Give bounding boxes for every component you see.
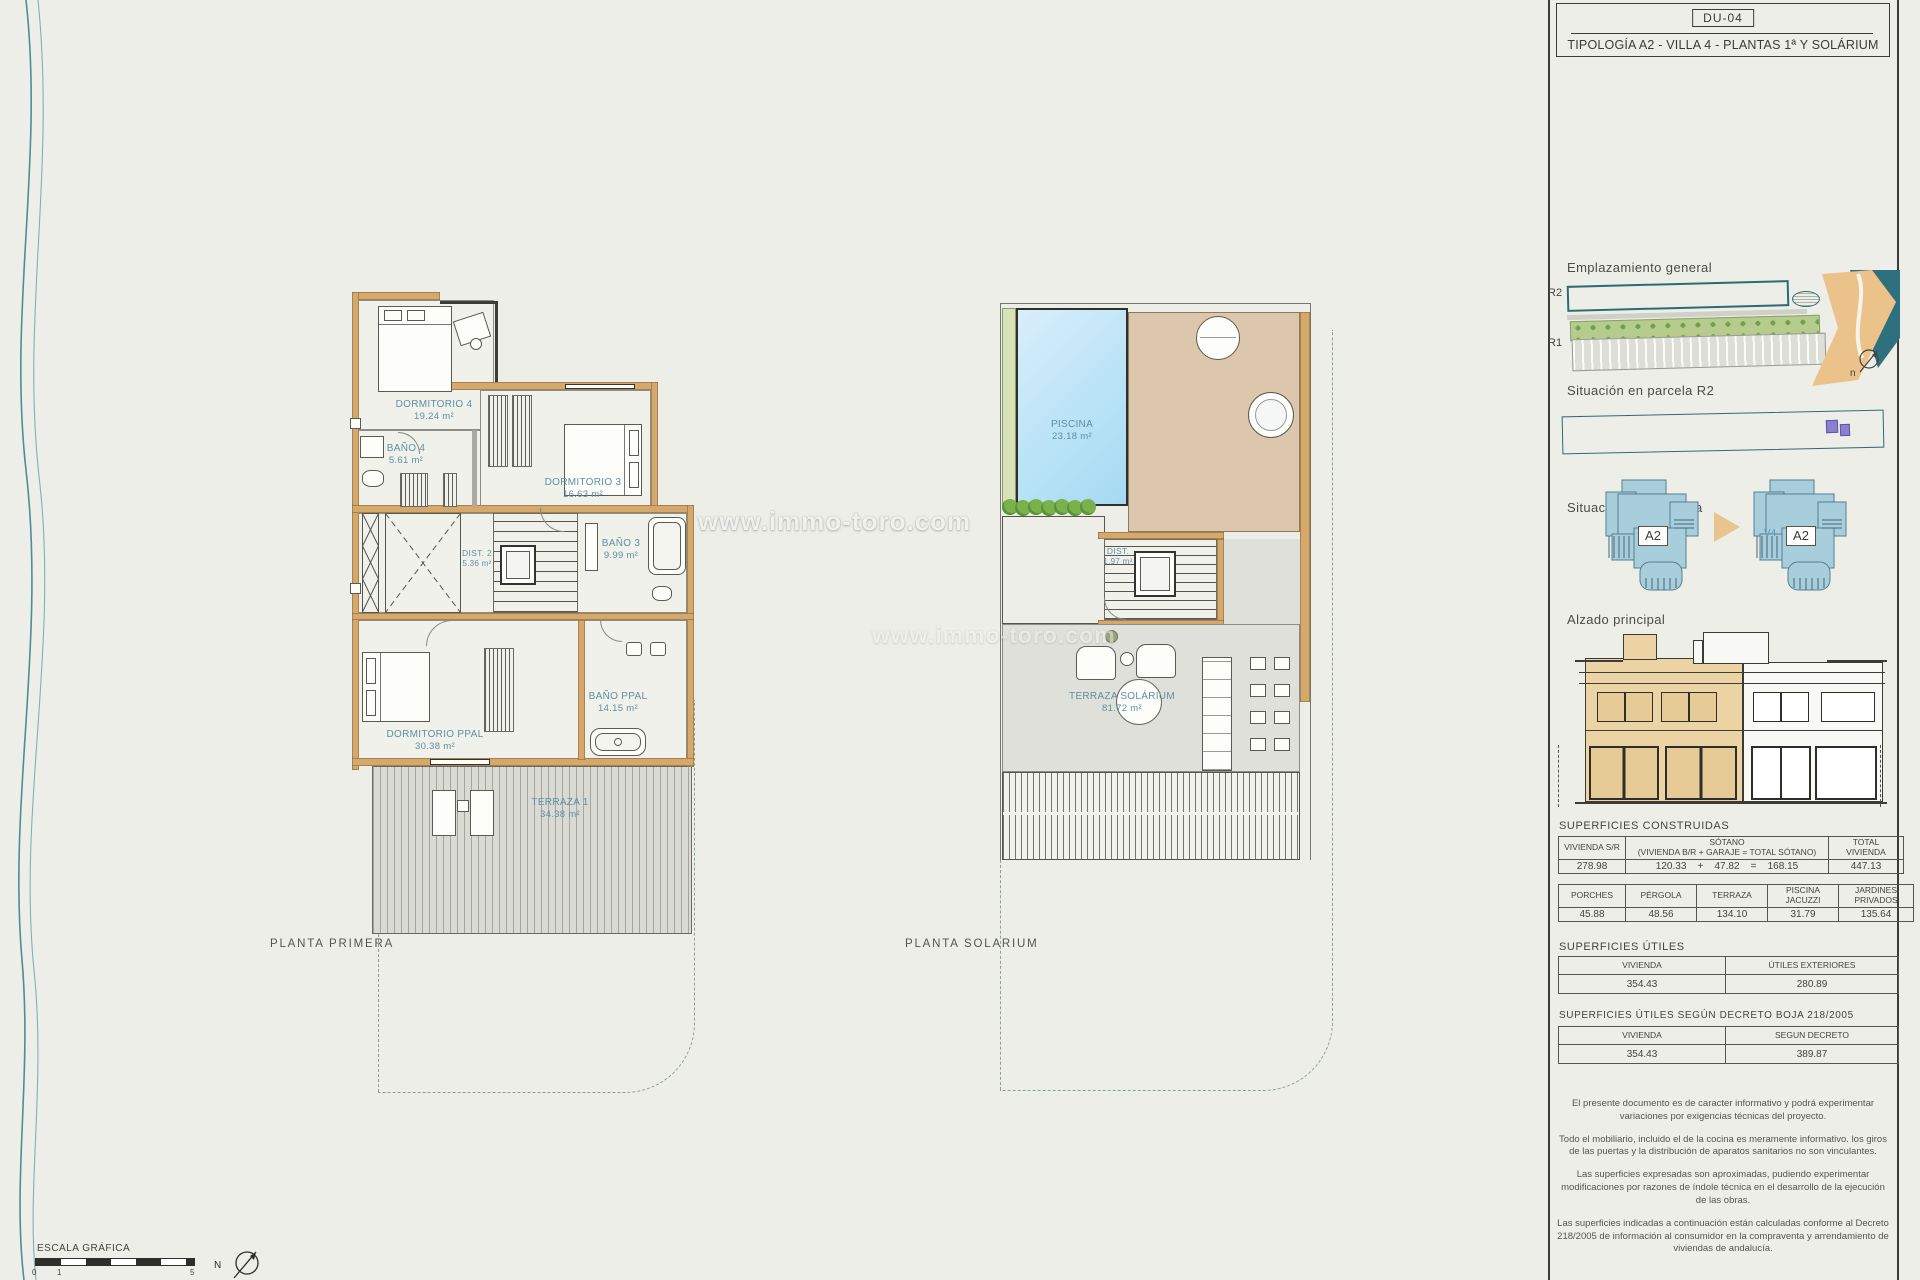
- elevation-railing-line: [1827, 660, 1887, 662]
- elevation-boundary-line: [1558, 745, 1560, 807]
- elevation-window: [1815, 746, 1877, 800]
- stool-symbol: [1274, 711, 1290, 724]
- table-cell: 354.43: [1559, 975, 1726, 994]
- col-header: SÓTANO (VIVIENDA B/R + GARAJE = TOTAL SÓ…: [1626, 837, 1829, 860]
- operator: +: [1698, 861, 1704, 872]
- villa-type-badge: A2: [1786, 526, 1816, 546]
- arrow-right-icon: [1714, 512, 1740, 542]
- watermark: www.immo-toro.com: [872, 622, 1116, 649]
- scale-tick: 5: [190, 1268, 194, 1277]
- room-label: DORMITORIO 3 16.63 m²: [545, 476, 622, 501]
- north-label: N: [214, 1260, 221, 1271]
- table-cell: 280.89: [1726, 975, 1899, 994]
- plot-boundary-line: [378, 934, 380, 1092]
- header-line: VIVIENDA: [1831, 848, 1901, 858]
- table-cell: 31.79: [1768, 907, 1839, 921]
- sheet-border-line: [1897, 0, 1899, 1280]
- table-cell: 354.43: [1559, 1045, 1726, 1064]
- wall: [1300, 312, 1310, 702]
- note-paragraph: El presente documento es de caracter inf…: [1556, 1098, 1890, 1124]
- room-name: TERRAZA 1: [531, 796, 588, 809]
- note-paragraph: Las superficies indicadas a continuación…: [1556, 1218, 1890, 1256]
- plan-title-primera: PLANTA PRIMERA: [270, 938, 394, 950]
- table-heading-construidas: SUPERFICIES CONSTRUIDAS: [1559, 820, 1729, 832]
- table-cell: 48.56: [1626, 907, 1697, 921]
- col-header: TERRAZA: [1697, 885, 1768, 908]
- table-cell: 134.10: [1697, 907, 1768, 921]
- value: 47.82: [1714, 861, 1739, 872]
- col-header: PISCINAJACUZZI: [1768, 885, 1839, 908]
- table-cell: 135.64: [1839, 907, 1914, 921]
- sofa-symbol: [1076, 646, 1116, 680]
- wall: [651, 382, 658, 508]
- bidet-symbol: [650, 642, 666, 656]
- bathtub-inner: [653, 522, 681, 570]
- scale-label: ESCALA GRÁFICA: [37, 1243, 130, 1254]
- col-header: SEGUN DECRETO: [1726, 1027, 1899, 1045]
- elevation-roof-box: [1693, 640, 1703, 664]
- col-header: PÉRGOLA: [1626, 885, 1697, 908]
- room-label: DORMITORIO 4 19.24 m²: [396, 398, 473, 423]
- table-cell: 278.98: [1559, 859, 1626, 873]
- wall: [472, 430, 477, 506]
- pillow-symbol: [629, 462, 639, 488]
- table-cell: 45.88: [1559, 907, 1626, 921]
- elevation-window: [1753, 692, 1809, 722]
- highlighted-villa-unit: [1826, 420, 1838, 433]
- wall: [1217, 539, 1224, 627]
- counter-symbol: [1202, 657, 1232, 771]
- room-area: 9.99 m²: [602, 550, 640, 562]
- room-area: 34.38 m²: [531, 809, 588, 821]
- room-label: PISCINA 23.18 m²: [1051, 418, 1093, 443]
- toilet-symbol: [362, 470, 384, 487]
- room-name: BAÑO 3: [602, 537, 640, 550]
- planter-strip: [1002, 308, 1016, 506]
- window-symbol: [565, 384, 635, 389]
- bed-line: [380, 653, 381, 721]
- sofa-symbol: [1136, 644, 1176, 678]
- stool-symbol: [1250, 738, 1266, 751]
- pillow-symbol: [384, 310, 402, 321]
- shoreline-waves-icon: [0, 0, 70, 1280]
- wardrobe-symbol: [484, 648, 514, 732]
- room-name: BAÑO 4: [387, 442, 425, 455]
- table-decreto: VIVIENDA SEGUN DECRETO 354.43 389.87: [1558, 1026, 1899, 1064]
- pillow-symbol: [629, 430, 639, 456]
- double-height-void-symbol: [362, 513, 462, 613]
- wall: [578, 620, 585, 760]
- title-block: DU-04 TIPOLOGÍA A2 - VILLA 4 - PLANTAS 1…: [1556, 3, 1890, 57]
- table-heading-decreto: SUPERFICIES ÚTILES SEGÚN DECRETO BOJA 21…: [1559, 1010, 1854, 1021]
- wall: [352, 613, 694, 620]
- washbasin-symbol: [585, 523, 598, 571]
- window-symbol: [350, 583, 361, 594]
- villa-number-tag: V4: [1764, 528, 1776, 539]
- col-header: VIVIENDA S/R: [1559, 837, 1626, 860]
- pillow-symbol: [407, 310, 425, 321]
- room-label: BAÑO PPAL 14.15 m²: [589, 690, 648, 715]
- room-label: DIST. 1.97 m²: [1103, 546, 1132, 567]
- drawing-code: DU-04: [1692, 9, 1754, 27]
- stool-symbol: [1274, 684, 1290, 697]
- elevation-floor-line: [1585, 730, 1883, 731]
- room-name: BAÑO PPAL: [589, 690, 648, 703]
- window-symbol: [350, 418, 361, 429]
- louver-roof-symbol: [1002, 772, 1300, 860]
- room-area: 1.97 m²: [1103, 557, 1132, 567]
- room-label: TERRAZA 1 34.38 m²: [531, 796, 588, 821]
- jacuzzi-inner: [1255, 399, 1287, 431]
- drain-symbol: [614, 738, 622, 746]
- scale-tick: 0: [32, 1268, 36, 1277]
- bed-line: [624, 425, 625, 495]
- scale-bar: [35, 1258, 195, 1266]
- side-table-symbol: [1120, 652, 1134, 666]
- scale-tick: 1: [57, 1268, 61, 1277]
- room-label: BAÑO 3 9.99 m²: [602, 537, 640, 562]
- window-symbol: [430, 759, 490, 765]
- section-heading-parcela: Situación en parcela R2: [1567, 383, 1714, 398]
- room-name: DIST.: [1103, 546, 1132, 557]
- note-paragraph: Todo el mobiliario, incluido el de la co…: [1556, 1134, 1890, 1160]
- terrace-deck: [372, 766, 692, 934]
- map-label-r2: R2: [1548, 287, 1562, 299]
- beach-map-symbol: [1798, 268, 1900, 386]
- stool-symbol: [1250, 684, 1266, 697]
- pillow-symbol: [366, 658, 376, 684]
- hedge-symbol: [1080, 499, 1096, 515]
- room-label: TERRAZA SOLÁRIUM 81.72 m²: [1069, 690, 1175, 715]
- toilet-symbol: [626, 642, 642, 656]
- room-area: 16.63 m²: [545, 489, 622, 501]
- map-label-r1: R1: [1548, 337, 1562, 349]
- elevation-ground-line: [1575, 802, 1887, 804]
- elevation-window: [1665, 746, 1737, 800]
- col-header: ÚTILES EXTERIORES: [1726, 957, 1899, 975]
- daybed-symbol: [1196, 316, 1240, 360]
- section-heading-emplazamiento: Emplazamiento general: [1567, 260, 1712, 275]
- sun-lounger-symbol: [470, 790, 494, 836]
- daybed-line: [1200, 337, 1236, 338]
- elevation-window: [1597, 692, 1653, 722]
- wall: [352, 758, 694, 766]
- plan-outline: [1000, 303, 1001, 860]
- wardrobe-symbol: [512, 395, 532, 467]
- stool-symbol: [1250, 711, 1266, 724]
- wardrobe-symbol: [488, 395, 508, 467]
- swimming-pool: [1016, 308, 1128, 506]
- elevation-window: [1589, 746, 1659, 800]
- room-name: DORMITORIO 3: [545, 476, 622, 489]
- col-header: VIVIENDA: [1559, 957, 1726, 975]
- wall: [352, 292, 440, 300]
- table-cell: 120.33 + 47.82 = 168.15: [1626, 859, 1829, 873]
- site-strip-r2: [1567, 280, 1790, 312]
- room-area: 81.72 m²: [1069, 703, 1175, 715]
- elevation-roof-box: [1703, 632, 1769, 664]
- stool-symbol: [1274, 738, 1290, 751]
- elevation-drawing: [1575, 630, 1890, 810]
- elevation-window: [1821, 692, 1875, 722]
- glass-wall: [495, 301, 498, 385]
- elevation-parapet-line: [1579, 683, 1885, 684]
- north-arrow-icon: [1852, 346, 1882, 380]
- room-label: DIST. 2 5.36 m²: [462, 548, 492, 569]
- room-area: 5.61 m²: [387, 455, 425, 467]
- sheet-divider-line: [1548, 0, 1550, 1280]
- glass-wall: [440, 301, 498, 304]
- louver-divider: [1003, 812, 1299, 815]
- col-header: JARDINESPRIVADOS: [1839, 885, 1914, 908]
- room-area: 5.36 m²: [462, 559, 492, 569]
- villa-type-badge: A2: [1638, 526, 1668, 546]
- section-heading-alzado: Alzado principal: [1567, 612, 1665, 627]
- solarium-terrace-floor: [1224, 539, 1300, 624]
- pergola-symbol: [1002, 516, 1105, 624]
- watermark: www.immo-toro.com: [698, 506, 971, 537]
- operator: =: [1751, 861, 1757, 872]
- closet-symbol: [443, 473, 457, 507]
- table-construidas-1: VIVIENDA S/R SÓTANO (VIVIENDA B/R + GARA…: [1558, 836, 1904, 874]
- wall: [352, 292, 359, 770]
- north-arrow-icon: [226, 1248, 262, 1280]
- wall: [1098, 532, 1224, 539]
- room-name: DORMITORIO PPAL: [387, 728, 484, 741]
- room-label: BAÑO 4 5.61 m²: [387, 442, 425, 467]
- site-units-band: [1572, 333, 1827, 372]
- elevation-window: [1751, 746, 1811, 800]
- room-area: 19.24 m²: [396, 411, 473, 423]
- col-header: TOTAL VIVIENDA: [1829, 837, 1904, 860]
- pillow-symbol: [366, 690, 376, 716]
- room-label: DORMITORIO PPAL 30.38 m²: [387, 728, 484, 753]
- room-area: 30.38 m²: [387, 741, 484, 753]
- toilet-symbol: [652, 586, 672, 601]
- table-utiles: VIVIENDA ÚTILES EXTERIORES 354.43 280.89: [1558, 956, 1899, 994]
- chair-symbol: [470, 338, 482, 350]
- north-label: n: [1850, 368, 1856, 379]
- washbasin-symbol: [360, 436, 384, 458]
- table-cell: 389.87: [1726, 1045, 1899, 1064]
- note-paragraph: Las superficies expresadas son aproximad…: [1556, 1169, 1890, 1207]
- plan-outline: [1000, 303, 1310, 304]
- elevation-railing-line: [1575, 660, 1623, 662]
- elevator-cab-symbol: [506, 551, 530, 579]
- plot-boundary-line: [1000, 860, 1002, 1090]
- highlighted-villa-unit: [1840, 424, 1850, 436]
- room-name: DORMITORIO 4: [396, 398, 473, 411]
- room-name: PISCINA: [1051, 418, 1093, 431]
- sun-lounger-symbol: [432, 790, 456, 836]
- stool-symbol: [1250, 657, 1266, 670]
- plan-outline: [1310, 303, 1311, 860]
- room-name: TERRAZA SOLÁRIUM: [1069, 690, 1175, 703]
- wall: [687, 505, 694, 767]
- stool-symbol: [1274, 657, 1290, 670]
- sheet: DORMITORIO 4 19.24 m² BAÑO 4 5.61 m² DOR…: [0, 0, 1920, 1280]
- table-cell: 447.13: [1829, 859, 1904, 873]
- elevation-parapet-line: [1579, 672, 1885, 673]
- room-area: 14.15 m²: [589, 703, 648, 715]
- room-name: DIST. 2: [462, 548, 492, 559]
- bed-line: [379, 324, 451, 325]
- elevation-window: [1661, 692, 1717, 722]
- drawing-title: TIPOLOGÍA A2 - VILLA 4 - PLANTAS 1ª Y SO…: [1557, 38, 1889, 52]
- room-area: 23.18 m²: [1051, 431, 1093, 443]
- elevation-roof-box: [1623, 634, 1657, 660]
- header-line: (VIVIENDA B/R + GARAJE = TOTAL SÓTANO): [1628, 848, 1826, 858]
- closet-symbol: [400, 473, 428, 507]
- table-heading-utiles: SUPERFICIES ÚTILES: [1559, 941, 1685, 953]
- col-header: PORCHES: [1559, 885, 1626, 908]
- plan-title-solarium: PLANTA SOLARIUM: [905, 938, 1039, 950]
- notes-block: El presente documento es de caracter inf…: [1556, 1098, 1890, 1266]
- elevator-cab-symbol: [1140, 557, 1170, 591]
- value: 120.33: [1656, 861, 1687, 872]
- col-header: VIVIENDA: [1559, 1027, 1726, 1045]
- title-divider: [1571, 33, 1873, 34]
- table-construidas-2: PORCHES PÉRGOLA TERRAZA PISCINAJACUZZI J…: [1558, 884, 1914, 922]
- side-table-symbol: [457, 800, 469, 812]
- value: 168.15: [1768, 861, 1799, 872]
